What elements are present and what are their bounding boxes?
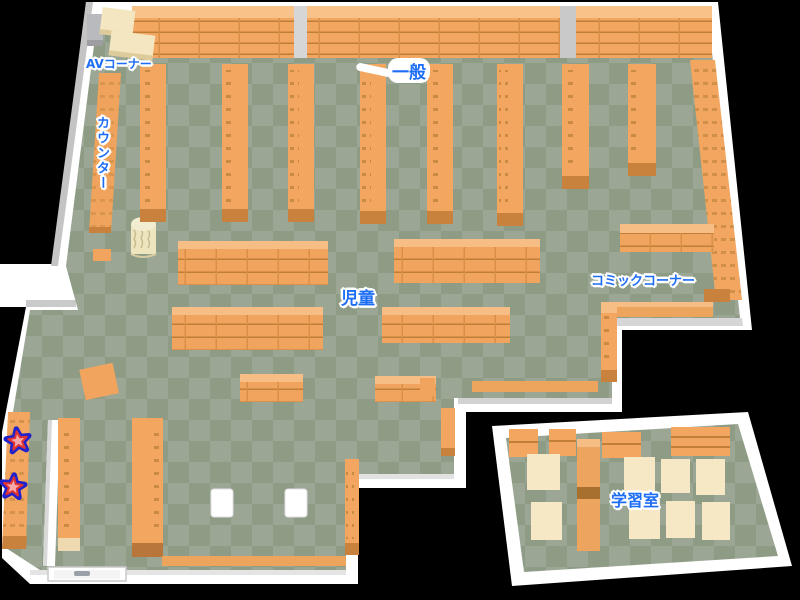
desk (696, 459, 725, 495)
bookshelf (601, 302, 617, 382)
bookshelf (222, 64, 248, 222)
small-shelf (420, 378, 435, 396)
wall-bookshelf (307, 6, 560, 58)
wall-bookshelf (576, 6, 712, 58)
low-bookshelf (172, 307, 323, 350)
shelf-line (671, 436, 730, 438)
wall-shade (458, 398, 612, 404)
wall-shelf (162, 556, 346, 566)
desk (527, 454, 560, 490)
desk (666, 501, 695, 538)
shelf-line (602, 443, 641, 445)
low-bookshelf (549, 429, 576, 456)
bookshelf (345, 459, 359, 555)
bookshelf (441, 408, 455, 456)
alcove-wall-shade (26, 300, 76, 307)
stool (211, 489, 233, 517)
wall-shade (346, 474, 454, 479)
bookshelf (497, 64, 523, 226)
small-shelf (93, 249, 111, 261)
study-divider-shelf (577, 439, 600, 551)
entrance-door (48, 567, 126, 581)
low-bookshelf (394, 239, 540, 283)
label-comic-corner: コミックコーナー (591, 270, 695, 289)
wall-pillar (294, 6, 307, 58)
label-general: 一般 (388, 58, 430, 83)
bookshelf (628, 64, 656, 176)
wall-shade (614, 318, 743, 326)
bookshelf (58, 418, 80, 551)
label-study-room: 学習室 (611, 487, 659, 511)
low-bookshelf (240, 374, 303, 402)
low-bookshelf (617, 302, 713, 317)
shelf-line (549, 440, 576, 442)
desk (661, 459, 690, 493)
bookshelf (132, 418, 163, 557)
av-locker-side (87, 40, 103, 46)
door-handle (74, 571, 90, 576)
wall-bookshelf (132, 6, 294, 58)
label-children: 児童 (341, 284, 375, 309)
low-bookshelf (620, 224, 714, 252)
bookshelf (140, 64, 166, 222)
bookshelf (562, 64, 589, 189)
low-bookshelf (382, 307, 510, 343)
library-floor-map: AVコーナー カウンター 一般 児童 コミックコーナー 学習室 (0, 0, 800, 600)
shelf-line (671, 446, 730, 448)
desk (702, 502, 730, 540)
bookshelf (427, 64, 453, 224)
stool (285, 489, 307, 517)
wall-pillar (560, 6, 576, 58)
label-counter: カウンター (92, 116, 111, 216)
display-cylinder (131, 217, 156, 257)
shelf-line (509, 441, 538, 443)
bookshelf (288, 64, 314, 222)
low-bookshelf (671, 427, 730, 456)
desk (531, 502, 562, 540)
top-wall-shelves (132, 6, 712, 58)
low-bookshelf (178, 241, 328, 285)
wall-shelf (472, 381, 598, 392)
floor-map-canvas (0, 0, 800, 600)
label-av-corner: AVコーナー (86, 55, 152, 72)
bookshelf (360, 64, 386, 224)
